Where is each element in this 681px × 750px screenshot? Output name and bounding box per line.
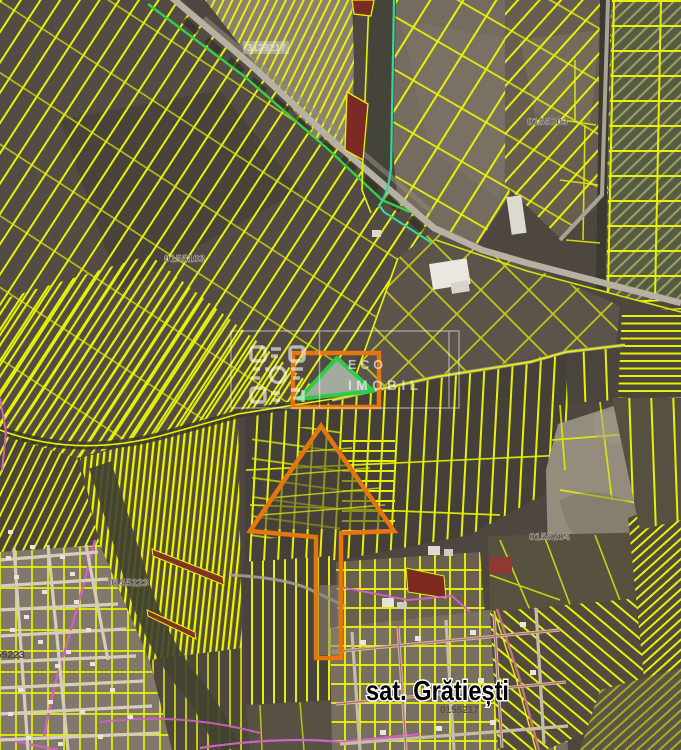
svg-text:0155103: 0155103 [164,253,205,265]
svg-text:0155203: 0155203 [527,116,568,128]
svg-text:0155223: 0155223 [0,649,25,661]
svg-text:ECO: ECO [348,358,383,372]
svg-text:0155204: 0155204 [529,531,570,543]
svg-text:sat. Grătiești: sat. Grătiești [366,675,509,706]
svg-text:0155217: 0155217 [440,705,479,716]
svg-text:3129217: 3129217 [247,43,286,54]
svg-text:0155223: 0155223 [108,577,149,589]
